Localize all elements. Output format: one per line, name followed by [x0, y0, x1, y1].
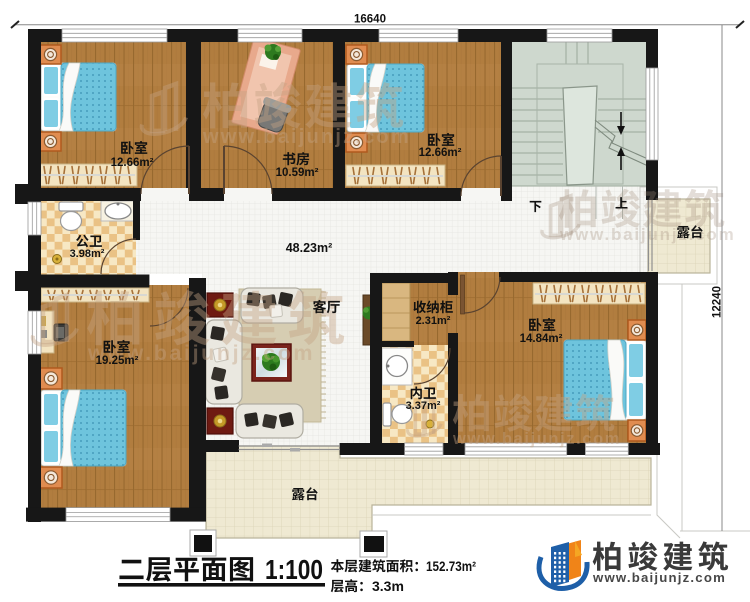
svg-text:www.baijunjz.com: www.baijunjz.com [452, 430, 621, 448]
svg-text:12240: 12240 [712, 286, 724, 318]
svg-text:12.66m²: 12.66m² [111, 157, 154, 169]
svg-text:152.73m²: 152.73m² [426, 558, 476, 574]
svg-text:19.25m²: 19.25m² [96, 355, 139, 367]
svg-text:3.3m: 3.3m [372, 578, 404, 594]
svg-text:1:100: 1:100 [265, 554, 323, 585]
svg-text:www.baijunjz.com: www.baijunjz.com [592, 570, 726, 585]
svg-text:10.59m²: 10.59m² [276, 167, 319, 179]
svg-text:www.baijunjz.com: www.baijunjz.com [202, 126, 411, 148]
svg-text:14.84m²: 14.84m² [520, 333, 563, 345]
svg-text:2.31m²: 2.31m² [416, 315, 451, 327]
svg-text:12.66m²: 12.66m² [419, 147, 462, 159]
svg-text:www.baijunjz.com: www.baijunjz.com [559, 225, 736, 244]
svg-text:3.37m²: 3.37m² [406, 400, 441, 412]
svg-text:48.23m²: 48.23m² [286, 241, 333, 255]
svg-text:3.98m²: 3.98m² [70, 248, 105, 260]
svg-text:16640: 16640 [354, 14, 386, 26]
